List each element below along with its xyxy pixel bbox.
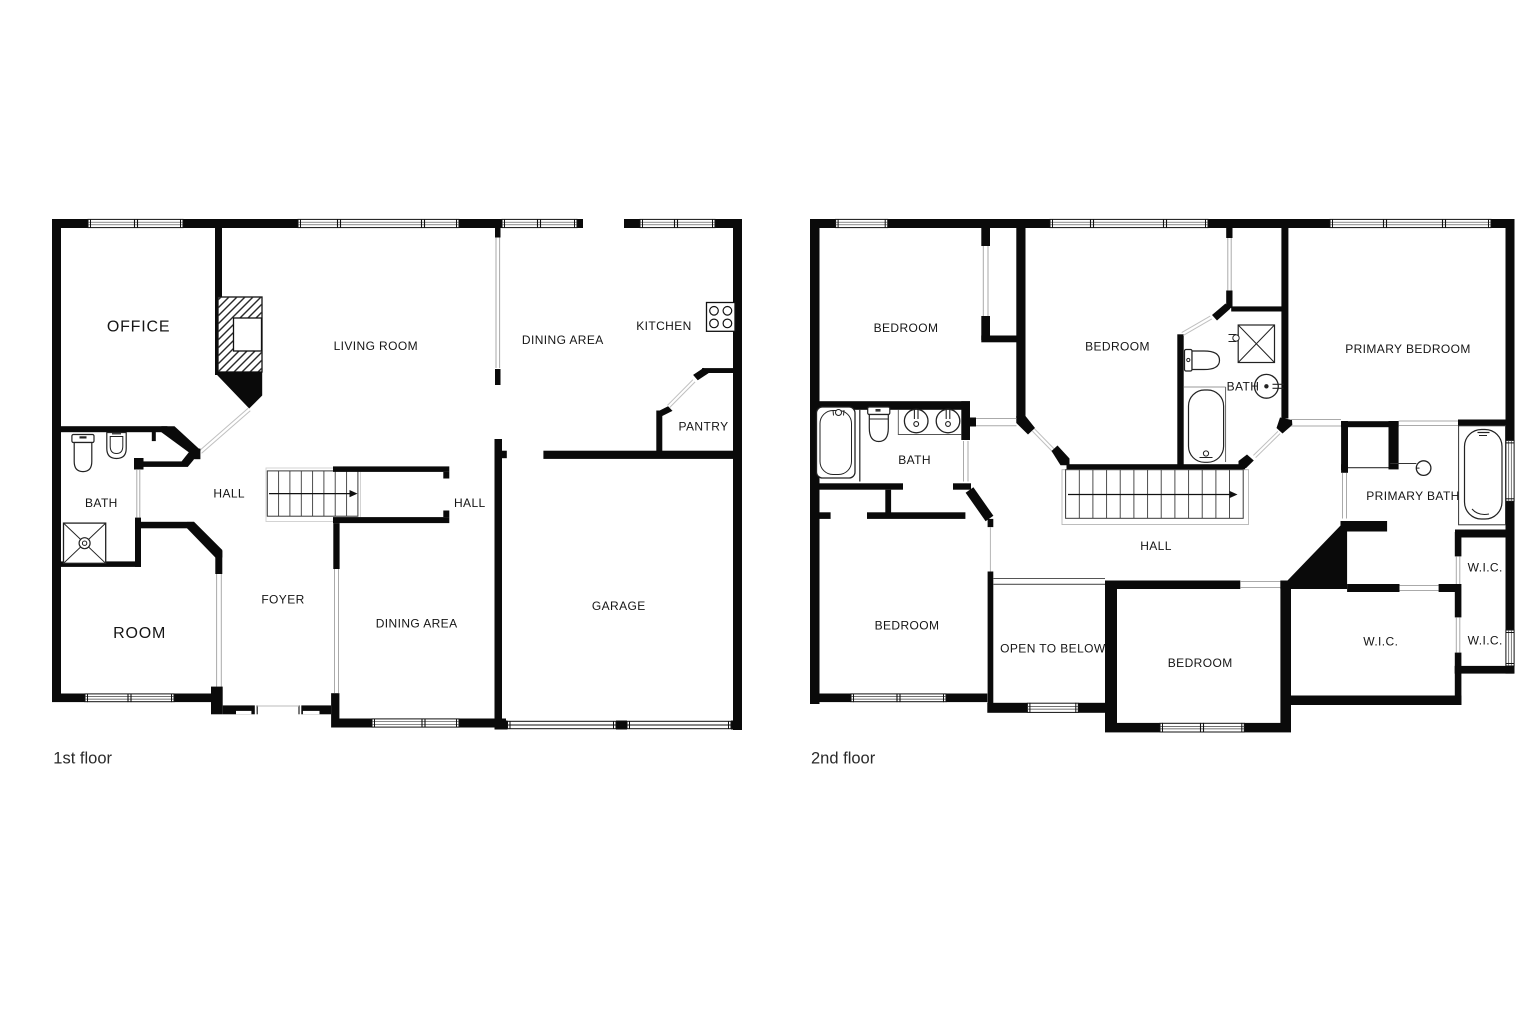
svg-text:BATH: BATH <box>85 496 118 510</box>
svg-text:HALL: HALL <box>213 486 245 500</box>
svg-text:KITCHEN: KITCHEN <box>636 319 691 333</box>
svg-text:BEDROOM: BEDROOM <box>874 321 939 335</box>
svg-text:BATH: BATH <box>898 453 931 467</box>
svg-text:HALL: HALL <box>454 496 486 510</box>
svg-text:GARAGE: GARAGE <box>592 599 646 613</box>
svg-text:W.I.C.: W.I.C. <box>1468 634 1503 648</box>
svg-text:DINING AREA: DINING AREA <box>376 616 458 630</box>
svg-text:BATH: BATH <box>1227 380 1260 394</box>
svg-text:ROOM: ROOM <box>113 625 166 642</box>
svg-text:LIVING ROOM: LIVING ROOM <box>334 339 418 353</box>
svg-text:2nd floor: 2nd floor <box>811 749 876 767</box>
svg-text:BEDROOM: BEDROOM <box>1168 656 1233 670</box>
svg-text:BEDROOM: BEDROOM <box>1085 340 1150 354</box>
svg-text:1st floor: 1st floor <box>53 749 112 767</box>
svg-text:PRIMARY BATH: PRIMARY BATH <box>1366 489 1460 503</box>
svg-text:FOYER: FOYER <box>261 592 304 606</box>
svg-text:PRIMARY BEDROOM: PRIMARY BEDROOM <box>1345 342 1471 356</box>
svg-text:BEDROOM: BEDROOM <box>875 619 940 633</box>
svg-text:HALL: HALL <box>1140 539 1172 553</box>
svg-text:OPEN TO BELOW: OPEN TO BELOW <box>1000 641 1106 655</box>
svg-text:OFFICE: OFFICE <box>107 318 170 335</box>
svg-text:PANTRY: PANTRY <box>679 420 729 434</box>
svg-text:W.I.C.: W.I.C. <box>1468 560 1503 574</box>
svg-text:W.I.C.: W.I.C. <box>1363 635 1398 649</box>
svg-text:DINING AREA: DINING AREA <box>522 333 604 347</box>
